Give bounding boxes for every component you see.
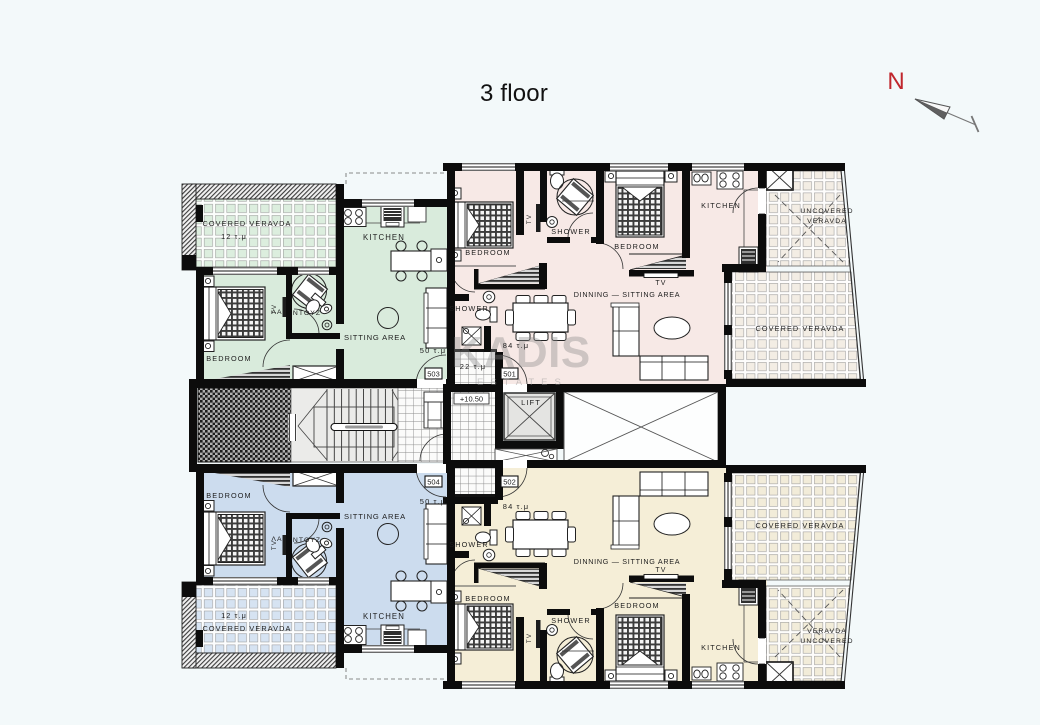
svg-text:DINNING — SITTING AREA: DINNING — SITTING AREA bbox=[574, 290, 680, 299]
svg-text:502: 502 bbox=[503, 478, 516, 487]
svg-text:84 τ.μ: 84 τ.μ bbox=[503, 341, 529, 350]
svg-text:N: N bbox=[887, 68, 904, 95]
svg-text:22 τ.μ: 22 τ.μ bbox=[460, 362, 486, 371]
svg-text:+10.50: +10.50 bbox=[460, 395, 483, 404]
svg-text:E S T A T E S: E S T A T E S bbox=[477, 377, 563, 388]
svg-text:SHOWER: SHOWER bbox=[551, 616, 590, 625]
svg-text:TV: TV bbox=[271, 304, 278, 314]
svg-text:504: 504 bbox=[427, 478, 440, 487]
svg-text:BEDROOM: BEDROOM bbox=[206, 491, 251, 500]
svg-text:BEDROOM: BEDROOM bbox=[206, 354, 251, 363]
svg-text:UNCOVERED: UNCOVERED bbox=[800, 638, 853, 645]
svg-text:50 τ.μ: 50 τ.μ bbox=[420, 497, 446, 506]
svg-text:VERAVDA: VERAVDA bbox=[807, 218, 847, 225]
svg-text:BEDROOM: BEDROOM bbox=[465, 248, 510, 257]
svg-text:SITTING AREA: SITTING AREA bbox=[344, 333, 406, 342]
svg-text:KITCHEN: KITCHEN bbox=[363, 612, 405, 621]
svg-text:503: 503 bbox=[427, 370, 440, 379]
svg-text:COVERED VERAVDA: COVERED VERAVDA bbox=[756, 521, 845, 530]
svg-text:DINNING — SITTING AREA: DINNING — SITTING AREA bbox=[574, 557, 680, 566]
svg-text:TV: TV bbox=[526, 214, 533, 224]
svg-text:12 τ.μ: 12 τ.μ bbox=[221, 611, 247, 620]
svg-text:TV: TV bbox=[271, 540, 278, 550]
svg-text:BEDROOM: BEDROOM bbox=[614, 601, 659, 610]
svg-text:VERAVDA: VERAVDA bbox=[807, 628, 847, 635]
svg-text:ΝΤΟΥΖ: ΝΤΟΥΖ bbox=[293, 310, 321, 317]
svg-text:TV: TV bbox=[526, 633, 533, 643]
svg-text:COVERED VERAVDA: COVERED VERAVDA bbox=[203, 219, 292, 228]
svg-text:50 τ.μ: 50 τ.μ bbox=[420, 346, 446, 355]
svg-text:3 floor: 3 floor bbox=[480, 80, 548, 107]
svg-text:SITTING AREA: SITTING AREA bbox=[344, 512, 406, 521]
svg-text:COVERED VERAVDA: COVERED VERAVDA bbox=[203, 624, 292, 633]
svg-text:SHOWER: SHOWER bbox=[449, 304, 488, 313]
svg-text:COVERED VERAVDA: COVERED VERAVDA bbox=[756, 324, 845, 333]
svg-text:12 τ.μ: 12 τ.μ bbox=[221, 232, 247, 241]
svg-text:BEDROOM: BEDROOM bbox=[614, 242, 659, 251]
svg-text:SHOWER: SHOWER bbox=[449, 540, 488, 549]
svg-text:LIFT: LIFT bbox=[521, 398, 541, 407]
svg-text:SHOWER: SHOWER bbox=[551, 227, 590, 236]
svg-text:TV: TV bbox=[655, 567, 666, 574]
svg-text:KITCHEN: KITCHEN bbox=[363, 233, 405, 242]
svg-text:UNCOVERED: UNCOVERED bbox=[800, 208, 853, 215]
svg-text:KITCHEN: KITCHEN bbox=[701, 643, 741, 652]
svg-text:ΝΤΟΥΖ: ΝΤΟΥΖ bbox=[293, 537, 321, 544]
svg-text:BEDROOM: BEDROOM bbox=[465, 594, 510, 603]
svg-text:KITCHEN: KITCHEN bbox=[701, 201, 741, 210]
svg-text:84 τ.μ: 84 τ.μ bbox=[503, 502, 529, 511]
svg-text:TV: TV bbox=[655, 280, 666, 287]
